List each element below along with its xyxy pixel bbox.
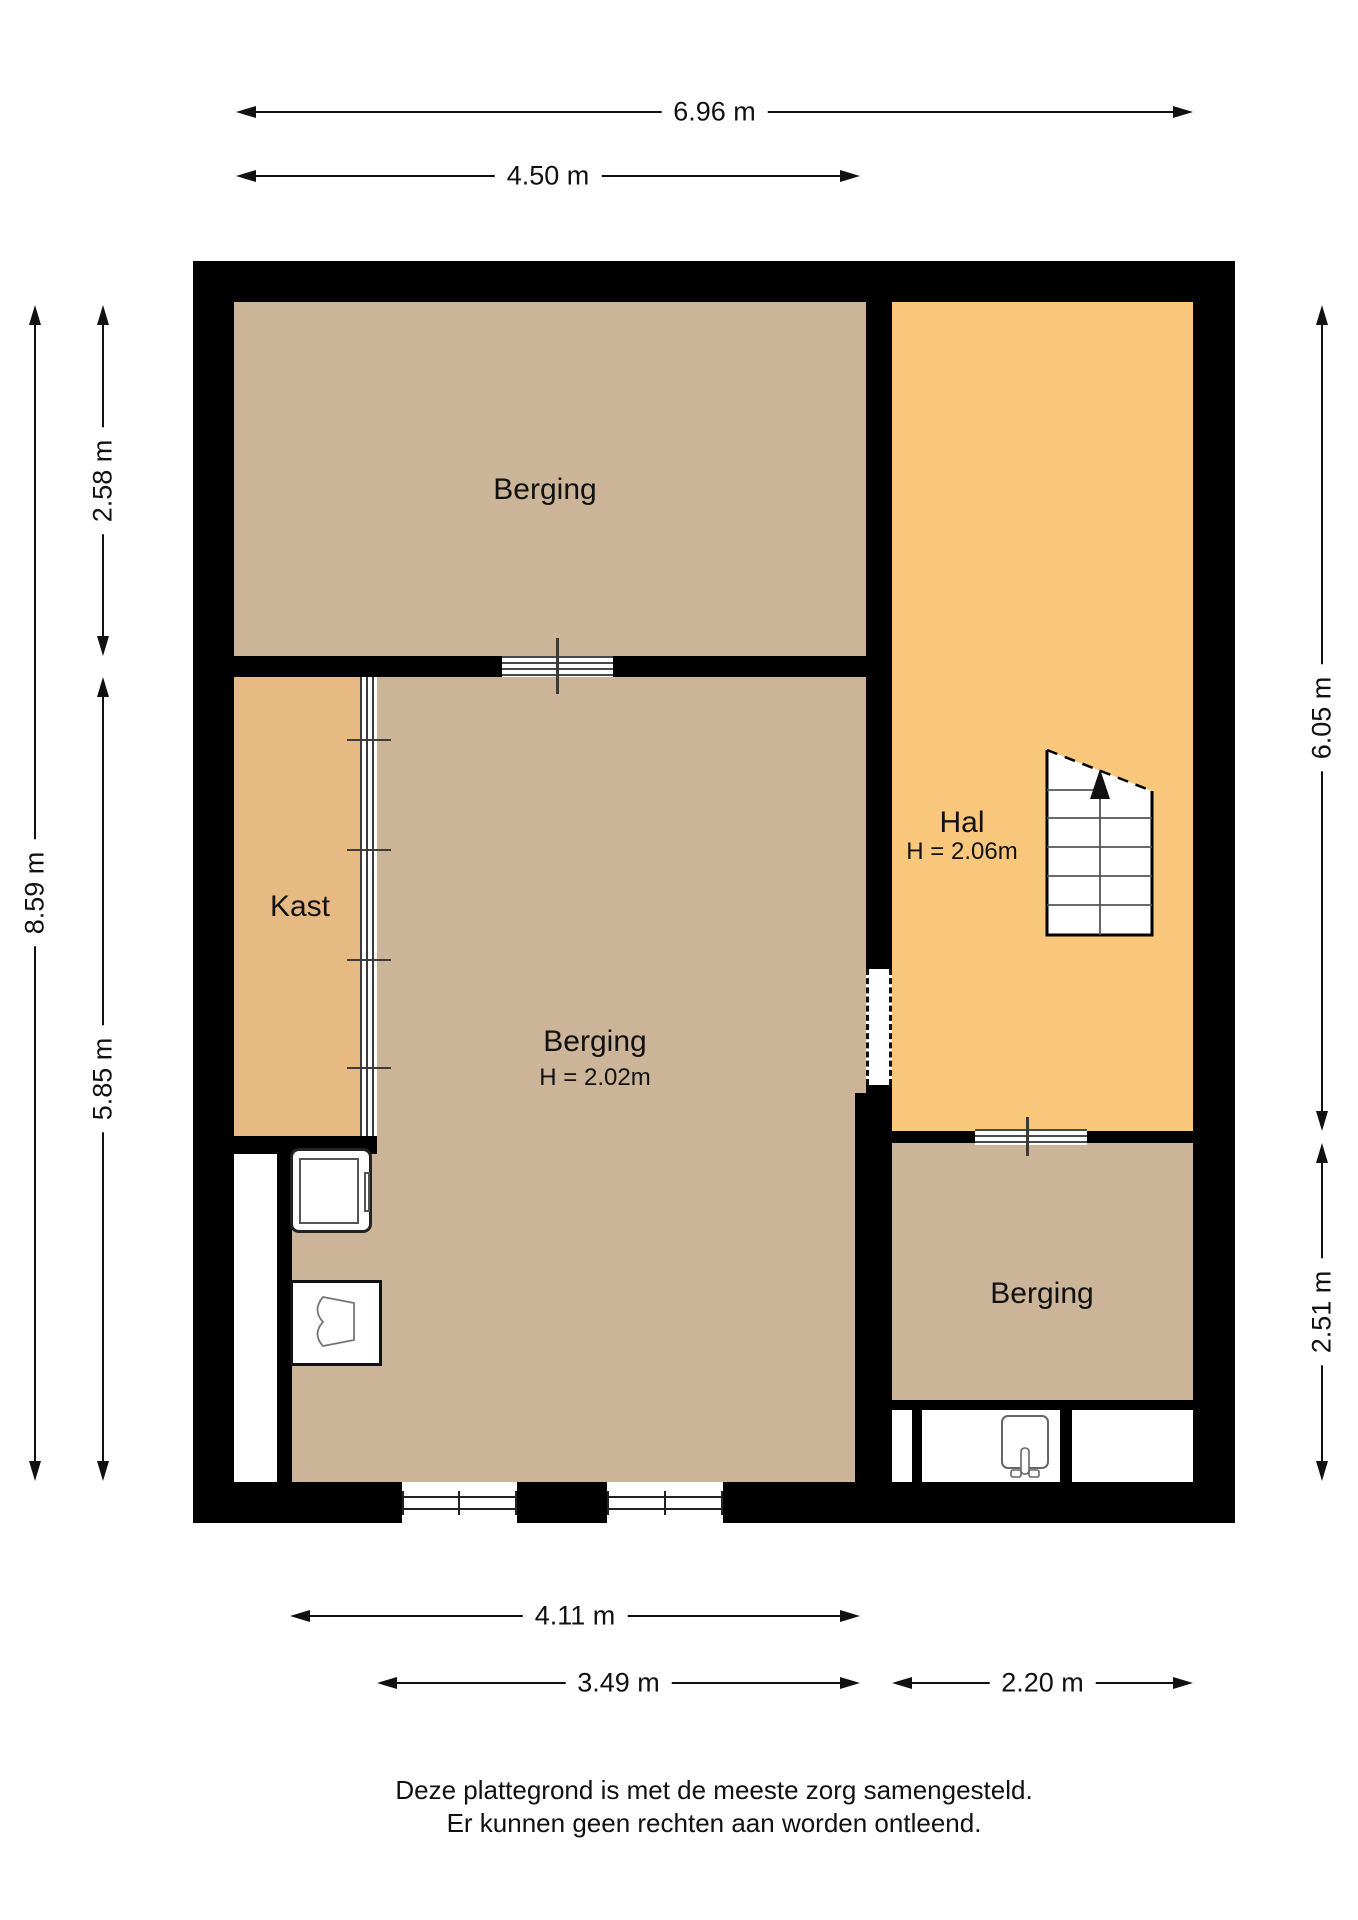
niche-left [892, 1410, 912, 1482]
room-label-hal: Hal [939, 806, 984, 840]
dimension-right-lower: 2.51 m [1314, 1143, 1330, 1481]
disclaimer: Deze plattegrond is met de meeste zorg s… [193, 1774, 1235, 1840]
dimension-left-lower-label: 5.85 m [88, 1026, 119, 1133]
boiler-inner [299, 1158, 359, 1224]
dimension-bottom-left-label: 3.49 m [565, 1668, 672, 1699]
opening-berging-top-door-line [556, 638, 559, 694]
dimension-right-upper: 6.05 m [1314, 305, 1330, 1131]
room-label-berging-central: Berging [543, 1025, 646, 1059]
dimension-left-upper-label: 2.58 m [88, 427, 119, 534]
disclaimer-line-1: Deze plattegrond is met de meeste zorg s… [193, 1774, 1235, 1807]
dimension-bottom-inner-label: 4.11 m [523, 1601, 628, 1632]
dimension-top-total-label: 6.96 m [661, 97, 768, 128]
kast-partition-tick [347, 959, 391, 961]
fixture-symbol-icon [288, 1278, 384, 1368]
dimension-top-total: 6.96 m [236, 104, 1193, 120]
dimension-left-total-label: 8.59 m [20, 840, 51, 947]
kast-partition-tick [347, 739, 391, 741]
wall-mid-vertical-lower [855, 1093, 892, 1482]
dimension-bottom-right: 2.20 m [892, 1675, 1193, 1691]
dimension-left-total: 8.59 m [27, 305, 43, 1481]
room-label-berging-bottom: Berging [990, 1277, 1093, 1311]
dimension-top-inner-label: 4.50 m [495, 161, 602, 192]
dimension-right-upper-label: 6.05 m [1307, 665, 1338, 772]
disclaimer-line-2: Er kunnen geen rechten aan worden ontlee… [193, 1807, 1235, 1840]
dimension-left-lower: 5.85 m [95, 677, 111, 1481]
room-berging-central-floor-lower [377, 1093, 855, 1482]
passage-berging-hal [866, 969, 892, 1085]
window-tick [664, 1491, 666, 1515]
boiler-handle [364, 1172, 370, 1212]
kast-partition-tick [347, 849, 391, 851]
sink-icon [996, 1410, 1056, 1482]
dimension-bottom-right-label: 2.20 m [989, 1668, 1096, 1699]
wall-niche-stub-2 [1060, 1410, 1072, 1482]
wall-outer-left [193, 261, 234, 1523]
opening-hal-berging [975, 1129, 1087, 1145]
meterkast-niche [234, 1154, 277, 1482]
window-tick [458, 1491, 460, 1515]
opening-hal-berging-door-line [1026, 1117, 1029, 1156]
wall-outer-top [193, 261, 1235, 302]
window-tick [721, 1491, 723, 1515]
room-hal-floor [892, 302, 1193, 1131]
room-height-hal: H = 2.06m [906, 838, 1017, 866]
wall-outer-right [1193, 261, 1235, 1523]
dimension-bottom-inner: 4.11 m [290, 1608, 860, 1624]
room-label-kast: Kast [270, 890, 330, 924]
kast-partition-tick [347, 1067, 391, 1069]
room-berging-bottom-floor [892, 1143, 1193, 1400]
window-tick [515, 1491, 517, 1515]
dimension-bottom-left: 3.49 m [377, 1675, 860, 1691]
dimension-right-lower-label: 2.51 m [1307, 1259, 1338, 1366]
window-bottom-left [402, 1482, 517, 1523]
window-tick [402, 1491, 404, 1515]
wall-berging-bottom-bottom [855, 1400, 1193, 1410]
room-height-berging-central: H = 2.02m [539, 1064, 650, 1092]
floor-plan: Berging Kast Berging H = 2.02m Hal H = 2… [0, 0, 1358, 1920]
window-bottom-right [607, 1482, 723, 1523]
dimension-left-upper: 2.58 m [95, 305, 111, 656]
wall-niche-stub-1 [912, 1410, 922, 1482]
dimension-top-inner: 4.50 m [236, 168, 860, 184]
stairs-icon [1040, 735, 1162, 945]
room-label-berging-top: Berging [493, 473, 596, 507]
window-tick [607, 1491, 609, 1515]
niche-right [1072, 1410, 1193, 1482]
